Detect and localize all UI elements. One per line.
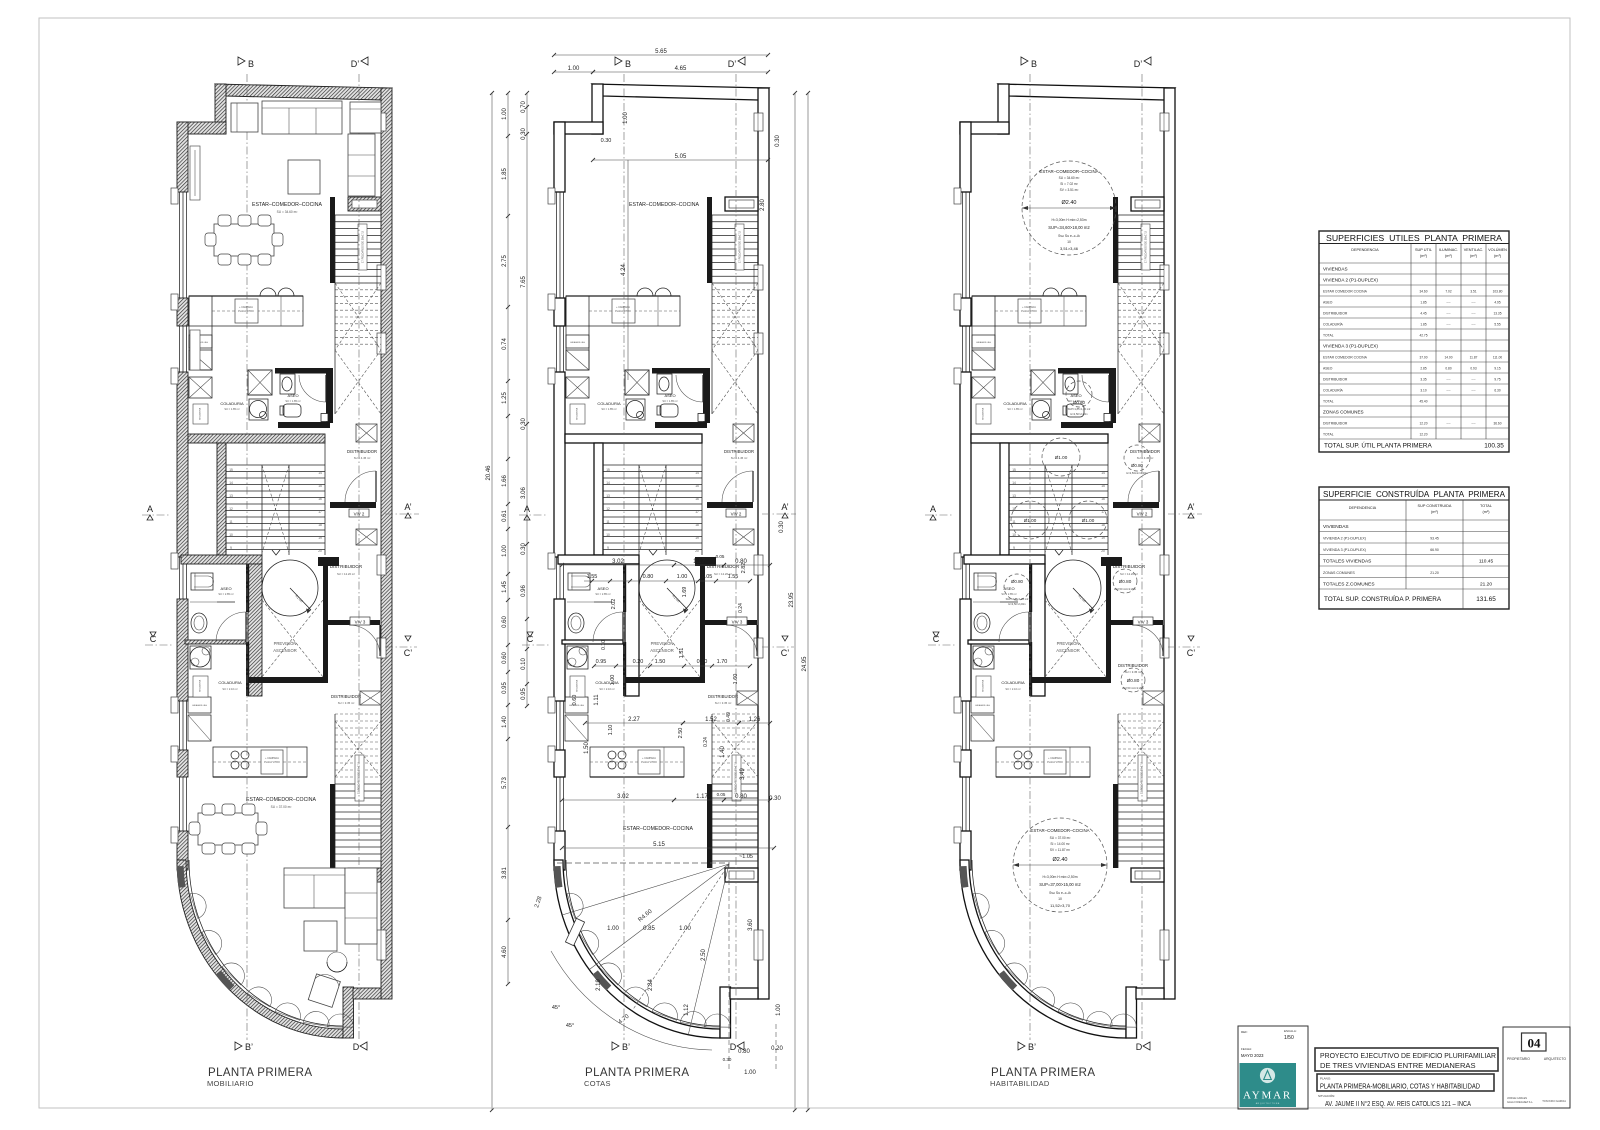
svg-text:1.69: 1.69 xyxy=(682,587,688,598)
svg-text:110.45: 110.45 xyxy=(1479,558,1494,564)
svg-text:14: 14 xyxy=(229,481,233,485)
svg-text:11.87: 11.87 xyxy=(1470,356,1478,360)
svg-text:PROYECTO EJECUTIVO DE EDIFICIO: PROYECTO EJECUTIVO DE EDIFICIO PLURIFAMI… xyxy=(1320,1051,1496,1060)
svg-text:21.20: 21.20 xyxy=(1480,581,1492,587)
svg-text:1.26: 1.26 xyxy=(749,717,761,723)
svg-text:PLANTA PRIMERA-MOBILIARIO, COT: PLANTA PRIMERA-MOBILIARIO, COTAS Y HABIT… xyxy=(1320,1082,1480,1091)
svg-text:ASEO: ASEO xyxy=(664,393,675,398)
svg-text:(m²): (m²) xyxy=(1420,254,1428,258)
svg-text:DE TRES VIVIENDAS ENTRE MEDIAN: DE TRES VIVIENDAS ENTRE MEDIANERAS xyxy=(1320,1061,1476,1070)
svg-text:C: C xyxy=(933,634,940,644)
svg-text:1.55: 1.55 xyxy=(728,574,739,580)
svg-text:LAVAVAJILLAS: LAVAVAJILLAS xyxy=(570,341,585,344)
svg-text:SU = 4.45 m²: SU = 4.45 m² xyxy=(1137,456,1154,460)
svg-text:2.75: 2.75 xyxy=(502,255,508,267)
svg-text:3,51>3,46: 3,51>3,46 xyxy=(1060,246,1079,251)
svg-text:VIVIENDA 2 (P1-DUPLEX): VIVIENDA 2 (P1-DUPLEX) xyxy=(1323,536,1366,540)
svg-text:13.35: 13.35 xyxy=(1494,312,1502,316)
svg-text:7.02: 7.02 xyxy=(1445,290,1451,294)
svg-text:1.60: 1.60 xyxy=(733,674,739,685)
svg-text:H=2,50 min=2,20m: H=2,50 min=2,20m xyxy=(1122,686,1144,690)
svg-text:SUP=34,60>18,00 m2: SUP=34,60>18,00 m2 xyxy=(1048,225,1090,230)
svg-text:VIV 3: VIV 3 xyxy=(1138,620,1149,625)
svg-text:1.51: 1.51 xyxy=(679,648,685,659)
svg-text:D: D xyxy=(353,1042,360,1052)
svg-text:10: 10 xyxy=(229,533,233,537)
svg-text:0.80: 0.80 xyxy=(1445,367,1451,371)
svg-text:Ø2.40: Ø2.40 xyxy=(1062,200,1077,206)
svg-text:DISTRIBUIDOR: DISTRIBUIDOR xyxy=(1323,378,1348,382)
svg-text:SU = 1.85 m²: SU = 1.85 m² xyxy=(285,399,300,403)
svg-text:(m²): (m²) xyxy=(1445,254,1453,258)
svg-text:0.05: 0.05 xyxy=(702,574,713,580)
svg-text:14: 14 xyxy=(318,471,322,475)
svg-text:16: 16 xyxy=(318,497,322,501)
svg-text:LAVAVAJILLAS: LAVAVAJILLAS xyxy=(976,341,991,344)
svg-text:PREVISIÓN: PREVISIÓN xyxy=(274,641,297,646)
svg-text:3.02: 3.02 xyxy=(617,794,629,800)
svg-text:0.30: 0.30 xyxy=(521,128,527,140)
svg-text:SU = 2.10 m²: SU = 2.10 m² xyxy=(222,687,237,691)
svg-text:1.40: 1.40 xyxy=(720,746,726,758)
svg-text:COLADURIA: COLADURIA xyxy=(1001,680,1025,685)
svg-text:1.00: 1.00 xyxy=(623,112,629,124)
svg-text:ZONAS COMUNES: ZONAS COMUNES xyxy=(1323,571,1355,575)
svg-text:14: 14 xyxy=(695,471,699,475)
svg-text:SU = 1.85 m²: SU = 1.85 m² xyxy=(601,407,616,411)
svg-text:----: ---- xyxy=(1471,422,1475,426)
svg-text:Ø2.40: Ø2.40 xyxy=(1053,857,1068,863)
svg-text:TOTAL: TOTAL xyxy=(1480,504,1492,508)
svg-text:19: 19 xyxy=(695,536,699,540)
svg-text:SECADORA: SECADORA xyxy=(576,407,579,420)
svg-text:3.02: 3.02 xyxy=(612,559,624,565)
svg-text:34.60: 34.60 xyxy=(1420,290,1428,294)
svg-text:A R Q U I T E C T U R A: A R Q U I T E C T U R A xyxy=(1256,1102,1280,1105)
svg-text:SU = 2.85 m²: SU = 2.85 m² xyxy=(218,592,233,596)
svg-text:0.60: 0.60 xyxy=(572,695,578,706)
svg-text:B: B xyxy=(1031,59,1037,69)
svg-text:1.00: 1.00 xyxy=(679,926,691,932)
svg-text:SV = 3.51 m²: SV = 3.51 m² xyxy=(1060,188,1079,192)
svg-text:DISTRIBUIDOR: DISTRIBUIDOR xyxy=(1113,564,1146,569)
svg-text:3.35: 3.35 xyxy=(1420,378,1426,382)
svg-text:1.00: 1.00 xyxy=(502,108,508,120)
svg-text:Ø1.00: Ø1.00 xyxy=(1055,455,1068,460)
svg-text:1.85: 1.85 xyxy=(1420,323,1426,327)
svg-text:ESTAR–COMEDOR–COCINA: ESTAR–COMEDOR–COCINA xyxy=(246,797,316,803)
svg-text:15: 15 xyxy=(229,468,233,472)
svg-text:+ CAMPANA: + CAMPANA xyxy=(239,306,253,309)
svg-text:ASEO: ASEO xyxy=(1070,393,1081,398)
svg-text:17: 17 xyxy=(1101,510,1105,514)
svg-text:ASEO: ASEO xyxy=(597,586,608,591)
svg-text:H=2,50>2,20m: H=2,50>2,20m xyxy=(1008,602,1025,606)
svg-text:SITUACIÓN:: SITUACIÓN: xyxy=(1318,1093,1335,1098)
svg-text:COLADURIA: COLADURIA xyxy=(1003,401,1027,406)
svg-text:15: 15 xyxy=(695,484,699,488)
svg-text:ASEO: ASEO xyxy=(1003,586,1014,591)
svg-text:SI = 14.00 m²: SI = 14.00 m² xyxy=(1050,842,1069,846)
svg-text:24.95: 24.95 xyxy=(802,656,808,672)
svg-text:----: ---- xyxy=(1446,422,1450,426)
svg-text:TOTAL SUP. ÚTIL PLANTA PRI: TOTAL SUP. ÚTIL PLANTA PRIMERA xyxy=(1324,441,1432,450)
svg-text:10: 10 xyxy=(1058,897,1062,901)
svg-text:B’: B’ xyxy=(245,1042,253,1052)
svg-text:36.60: 36.60 xyxy=(1494,422,1502,426)
svg-text:5.73: 5.73 xyxy=(502,777,508,789)
svg-text:A’: A’ xyxy=(404,502,411,512)
svg-text:1.12: 1.12 xyxy=(684,1004,690,1016)
svg-text:15: 15 xyxy=(1012,468,1016,472)
svg-text:----: ---- xyxy=(1446,389,1450,393)
svg-text:100.35: 100.35 xyxy=(1484,443,1504,450)
svg-text:0.60: 0.60 xyxy=(502,652,508,664)
svg-text:B’: B’ xyxy=(1028,1042,1036,1052)
svg-text:1.45: 1.45 xyxy=(502,581,508,593)
svg-text:1.00: 1.00 xyxy=(610,675,616,686)
svg-text:Ø0.80: Ø0.80 xyxy=(1011,579,1024,584)
svg-text:SU = 1.85 m²: SU = 1.85 m² xyxy=(1007,407,1022,411)
svg-text:5.15: 5.15 xyxy=(653,842,665,848)
svg-text:VIVIENDA 3 (P1-DUPLEX): VIVIENDA 3 (P1-DUPLEX) xyxy=(1323,548,1366,552)
svg-text:14: 14 xyxy=(1101,471,1105,475)
svg-text:9: 9 xyxy=(1013,546,1015,550)
svg-text:DISTRIBUIDOR: DISTRIBUIDOR xyxy=(1130,449,1160,454)
svg-text:0.20: 0.20 xyxy=(633,659,644,665)
svg-text:B’: B’ xyxy=(622,1042,630,1052)
svg-text:Ø0.80: Ø0.80 xyxy=(1127,678,1140,683)
svg-text:VIV 3: VIV 3 xyxy=(732,620,743,625)
svg-text:SU = 1.85 m²: SU = 1.85 m² xyxy=(224,407,239,411)
svg-text:LAVAVAJILLAS: LAVAVAJILLAS xyxy=(975,704,990,707)
svg-text:9.75: 9.75 xyxy=(1494,378,1500,382)
svg-text:ASCENSOR: ASCENSOR xyxy=(273,648,297,653)
svg-text:----: ---- xyxy=(1446,301,1450,305)
svg-text:SECADORA: SECADORA xyxy=(199,679,202,692)
svg-text:PLACA VITRO: PLACA VITRO xyxy=(238,310,254,313)
svg-text:1.50: 1.50 xyxy=(655,659,666,665)
svg-text:D’: D’ xyxy=(351,59,360,69)
svg-text:2.27: 2.27 xyxy=(628,717,640,723)
svg-text:18: 18 xyxy=(318,523,322,527)
svg-text:4.60: 4.60 xyxy=(502,946,508,958)
svg-text:SUP=2,85>1,20 m2: SUP=2,85>1,20 m2 xyxy=(1006,597,1029,601)
svg-text:SECADORA: SECADORA xyxy=(199,407,202,420)
svg-text:4.65: 4.65 xyxy=(675,66,687,72)
svg-text:11: 11 xyxy=(229,520,233,524)
svg-text:----: ---- xyxy=(1471,389,1475,393)
svg-text:PLANTA PRIMERA: PLANTA PRIMERA xyxy=(585,1067,689,1079)
svg-text:SUP=37,00>15,00 m2: SUP=37,00>15,00 m2 xyxy=(1039,882,1081,887)
svg-text:17: 17 xyxy=(318,510,322,514)
svg-text:14.00: 14.00 xyxy=(1445,356,1453,360)
svg-text:DISTRIBUIDOR: DISTRIBUIDOR xyxy=(331,694,361,699)
svg-text:SU = 2.85 m²: SU = 2.85 m² xyxy=(595,592,610,596)
svg-text:ASCENSOR: ASCENSOR xyxy=(1056,648,1080,653)
svg-text:93.45: 93.45 xyxy=(1430,536,1439,540)
svg-text:ESTAR–COMEDOR–COCINA: ESTAR–COMEDOR–COCINA xyxy=(1039,169,1098,174)
svg-text:AYMAR: AYMAR xyxy=(1243,1090,1292,1102)
svg-text:0.30: 0.30 xyxy=(775,135,781,147)
svg-text:H=2,50 min=2,20m: H=2,50 min=2,20m xyxy=(1114,587,1136,591)
svg-text:45.40: 45.40 xyxy=(1420,400,1428,404)
svg-text:DISTRIBUIDOR: DISTRIBUIDOR xyxy=(347,449,377,454)
svg-text:11,52>3,70: 11,52>3,70 xyxy=(1050,903,1071,908)
svg-text:Sv≥ Su e–c–ik: Sv≥ Su e–c–ik xyxy=(1058,234,1080,238)
svg-text:H=3,00m H min=2,53m: H=3,00m H min=2,53m xyxy=(1051,218,1086,222)
svg-text:3.06: 3.06 xyxy=(521,487,527,499)
svg-text:A’: A’ xyxy=(1187,502,1194,512)
svg-text:18: 18 xyxy=(695,523,699,527)
svg-text:SU = 12.20 m²: SU = 12.20 m² xyxy=(337,572,355,576)
svg-text:16: 16 xyxy=(695,497,699,501)
svg-text:Ø1.00: Ø1.00 xyxy=(1024,518,1037,523)
svg-text:0.95: 0.95 xyxy=(502,682,508,694)
svg-text:0.80: 0.80 xyxy=(738,1049,750,1055)
svg-text:Ø0.80: Ø0.80 xyxy=(1073,400,1086,405)
svg-text:4.95: 4.95 xyxy=(1494,301,1500,305)
svg-text:+ CAMPANA: + CAMPANA xyxy=(1048,757,1062,760)
svg-text:C’: C’ xyxy=(404,648,413,658)
svg-text:21.20: 21.20 xyxy=(1430,571,1439,575)
svg-text:----: ---- xyxy=(1471,312,1475,316)
svg-text:ESTAR–COMEDOR–COCINA: ESTAR–COMEDOR–COCINA xyxy=(1030,828,1089,833)
svg-text:VOLÚMEN: VOLÚMEN xyxy=(1488,247,1507,252)
svg-text:4.45: 4.45 xyxy=(1420,312,1426,316)
svg-text:DISTRIBUIDOR: DISTRIBUIDOR xyxy=(708,694,738,699)
svg-text:ESTAR–COMEDOR–COCINA: ESTAR–COMEDOR–COCINA xyxy=(629,202,699,208)
svg-text:DEPENDENCIA: DEPENDENCIA xyxy=(1351,248,1379,252)
svg-text:7.65: 7.65 xyxy=(521,276,527,288)
svg-text:1.17: 1.17 xyxy=(696,794,708,800)
svg-text:1.00: 1.00 xyxy=(677,574,688,580)
svg-text:DISTRIBUIDOR: DISTRIBUIDOR xyxy=(1323,422,1348,426)
svg-text:1.00: 1.00 xyxy=(502,545,508,557)
svg-text:DEPENDENCIA: DEPENDENCIA xyxy=(1349,506,1377,510)
svg-text:----: ---- xyxy=(1446,378,1450,382)
svg-text:1.70: 1.70 xyxy=(717,659,728,665)
svg-text:0.30: 0.30 xyxy=(779,521,785,533)
svg-text:----: ---- xyxy=(1471,323,1475,327)
svg-text:VIVIENDAS: VIVIENDAS xyxy=(1323,524,1349,530)
svg-text:2.50: 2.50 xyxy=(678,728,684,739)
svg-text:103.80: 103.80 xyxy=(1493,290,1503,294)
svg-text:15: 15 xyxy=(606,468,610,472)
svg-text:PLACA VITRO: PLACA VITRO xyxy=(264,761,280,764)
svg-text:~1.05: ~1.05 xyxy=(739,854,753,860)
svg-text:6.30: 6.30 xyxy=(1494,389,1500,393)
svg-text:SU = 2.10 m²: SU = 2.10 m² xyxy=(599,687,614,691)
svg-text:18: 18 xyxy=(1101,523,1105,527)
svg-text:PROPIETARIO: PROPIETARIO xyxy=(1507,1057,1530,1061)
svg-text:3.81: 3.81 xyxy=(502,867,508,879)
svg-text:(m³): (m³) xyxy=(1494,254,1502,258)
svg-text:SU = 37.00 m²: SU = 37.00 m² xyxy=(1050,836,1071,840)
svg-text:+ CAMPANA: + CAMPANA xyxy=(1022,306,1036,309)
svg-text:3.10: 3.10 xyxy=(1420,389,1426,393)
svg-text:JORGE CARLES: JORGE CARLES xyxy=(1507,1096,1527,1100)
svg-text:10: 10 xyxy=(606,533,610,537)
svg-text:HABITABILIDAD: HABITABILIDAD xyxy=(990,1079,1050,1088)
svg-text:SUP=1,85>1,20 m2: SUP=1,85>1,20 m2 xyxy=(1068,407,1091,411)
svg-text:11: 11 xyxy=(1012,520,1016,524)
svg-text:0.49: 0.49 xyxy=(726,712,732,722)
svg-text:Sv≥ Su e–c–ik: Sv≥ Su e–c–ik xyxy=(1049,891,1071,895)
svg-text:37.00: 37.00 xyxy=(1420,356,1428,360)
svg-text:5.65: 5.65 xyxy=(655,49,667,55)
svg-text:1.25: 1.25 xyxy=(502,392,508,404)
svg-text:45°: 45° xyxy=(552,1005,560,1011)
svg-text:VENTILAC.: VENTILAC. xyxy=(1464,248,1484,252)
svg-text:SU = 4.45 m²: SU = 4.45 m² xyxy=(354,456,371,460)
svg-text:MOBILIARIO: MOBILIARIO xyxy=(207,1079,254,1088)
svg-text:SU = 4.45 m²: SU = 4.45 m² xyxy=(731,456,748,460)
svg-text:SECADORA: SECADORA xyxy=(576,679,579,692)
svg-text:0.20: 0.20 xyxy=(697,659,708,665)
svg-text:131.65: 131.65 xyxy=(1476,596,1496,603)
svg-text:11: 11 xyxy=(606,520,610,524)
svg-text:SU = 34.60 m²: SU = 34.60 m² xyxy=(277,210,298,214)
svg-text:0.80: 0.80 xyxy=(735,794,747,800)
svg-text:0.24: 0.24 xyxy=(738,603,744,613)
svg-text:1.85: 1.85 xyxy=(502,168,508,180)
svg-text:SECADORA: SECADORA xyxy=(982,407,985,420)
svg-text:04: 04 xyxy=(1528,1036,1542,1051)
svg-text:GALLO DIEGUEZ S.L.: GALLO DIEGUEZ S.L. xyxy=(1507,1100,1534,1104)
svg-text:PREVISIÓN: PREVISIÓN xyxy=(651,641,674,646)
svg-text:0.61: 0.61 xyxy=(502,510,508,522)
svg-text:Ø0.80: Ø0.80 xyxy=(1119,579,1132,584)
svg-text:12: 12 xyxy=(606,507,610,511)
svg-text:1.17: 1.17 xyxy=(693,559,705,565)
svg-text:0.20: 0.20 xyxy=(771,1046,783,1052)
svg-text:Ø0.80: Ø0.80 xyxy=(1131,463,1144,468)
svg-text:D: D xyxy=(730,1042,737,1052)
svg-text:0.93: 0.93 xyxy=(1470,367,1476,371)
svg-text:42.75: 42.75 xyxy=(1420,334,1428,338)
svg-text:(m²): (m²) xyxy=(1431,510,1439,514)
svg-text:PLACA VITRO: PLACA VITRO xyxy=(1047,761,1063,764)
svg-text:----: ---- xyxy=(1446,312,1450,316)
svg-text:SU = 2.85 m²: SU = 2.85 m² xyxy=(1001,592,1016,596)
svg-text:SU = 3.35 m²: SU = 3.35 m² xyxy=(715,701,732,705)
svg-text:4.24: 4.24 xyxy=(621,264,627,276)
svg-text:1.00: 1.00 xyxy=(776,1004,782,1016)
svg-text:----: ---- xyxy=(1471,301,1475,305)
svg-text:ASEO: ASEO xyxy=(220,586,231,591)
svg-text:0.95: 0.95 xyxy=(521,688,527,700)
svg-text:1.10: 1.10 xyxy=(608,725,614,736)
svg-text:2.82: 2.82 xyxy=(741,563,747,574)
svg-text:ZONAS COMUNES: ZONAS COMUNES xyxy=(1323,410,1364,415)
svg-text:0.85: 0.85 xyxy=(643,926,655,932)
svg-text:0.60: 0.60 xyxy=(502,616,508,628)
svg-text:10: 10 xyxy=(1067,240,1071,244)
svg-text:A’: A’ xyxy=(781,502,788,512)
svg-text:0.10: 0.10 xyxy=(601,640,607,650)
svg-text:ASEO: ASEO xyxy=(287,393,298,398)
svg-text:SUP CONSTRUIDA: SUP CONSTRUIDA xyxy=(1418,504,1452,508)
svg-text:1.85: 1.85 xyxy=(1420,301,1426,305)
svg-text:COTAS: COTAS xyxy=(584,1079,611,1088)
svg-text:1.00: 1.00 xyxy=(568,66,580,72)
svg-text:3.51: 3.51 xyxy=(1470,290,1476,294)
svg-text:PLANO:: PLANO: xyxy=(1320,1077,1331,1081)
svg-text:2.50: 2.50 xyxy=(701,949,707,961)
svg-text:SV = 11.87 m²: SV = 11.87 m² xyxy=(1050,848,1070,852)
svg-text:0.96: 0.96 xyxy=(521,585,527,597)
svg-text:ESTAR COMEDOR COCINA: ESTAR COMEDOR COCINA xyxy=(1323,356,1368,360)
svg-text:H=2,50min=2,20m: H=2,50min=2,20m xyxy=(1126,471,1147,475)
svg-text:ASEO: ASEO xyxy=(1323,301,1333,305)
svg-text:AV. JAUME II N°2 ESQ. AV. REIS: AV. JAUME II N°2 ESQ. AV. REIS CATOLICS … xyxy=(1325,1100,1471,1108)
svg-text:B: B xyxy=(248,59,254,69)
svg-text:B: B xyxy=(625,59,631,69)
svg-text:20: 20 xyxy=(1101,549,1105,553)
svg-text:ESTAR–COMEDOR–COCINA: ESTAR–COMEDOR–COCINA xyxy=(623,826,693,832)
svg-text:C’: C’ xyxy=(1187,648,1196,658)
svg-text:SECADORA: SECADORA xyxy=(982,679,985,692)
svg-text:0.30: 0.30 xyxy=(723,1057,732,1062)
svg-text:C’: C’ xyxy=(781,648,790,658)
svg-text:0.30: 0.30 xyxy=(769,796,781,802)
svg-text:SU = 2.10 m²: SU = 2.10 m² xyxy=(1005,687,1020,691)
svg-text:0.10: 0.10 xyxy=(521,658,527,670)
svg-text:0.05: 0.05 xyxy=(716,554,725,559)
svg-text:2.85: 2.85 xyxy=(1420,367,1426,371)
svg-text:5.05: 5.05 xyxy=(675,154,687,160)
svg-text:1.55: 1.55 xyxy=(587,574,598,580)
svg-text:15: 15 xyxy=(1101,484,1105,488)
svg-text:Ø1.00: Ø1.00 xyxy=(1082,518,1095,523)
svg-text:H=2,50>2,20m: H=2,50>2,20m xyxy=(1070,412,1087,416)
svg-text:----: ---- xyxy=(1471,378,1475,382)
svg-text:20: 20 xyxy=(318,549,322,553)
svg-text:1/50: 1/50 xyxy=(1284,1035,1294,1041)
svg-text:ASEO: ASEO xyxy=(1323,367,1333,371)
svg-text:D: D xyxy=(1136,1042,1143,1052)
svg-text:PLACA VITRO: PLACA VITRO xyxy=(615,310,631,313)
svg-text:SU = 3.35 m²: SU = 3.35 m² xyxy=(338,701,355,705)
svg-text:REF:: REF: xyxy=(1241,1030,1248,1034)
svg-text:SUPERFICIE CONSTRUÍDA PLANTA: SUPERFICIE CONSTRUÍDA PLANTA PRIMERA xyxy=(1323,489,1505,499)
svg-text:1.11: 1.11 xyxy=(594,694,600,706)
svg-text:SU = 34.60 m²: SU = 34.60 m² xyxy=(1059,176,1080,180)
svg-text:D’: D’ xyxy=(1134,59,1143,69)
svg-text:ASCENSOR: ASCENSOR xyxy=(650,648,674,653)
svg-text:TOTAL: TOTAL xyxy=(1323,334,1334,338)
svg-text:SU = 1.85 m²: SU = 1.85 m² xyxy=(662,399,677,403)
svg-text:ILUMINAC.: ILUMINAC. xyxy=(1439,248,1458,252)
svg-text:COLADURIA: COLADURIA xyxy=(220,401,244,406)
svg-text:12.20: 12.20 xyxy=(1420,433,1428,437)
svg-text:15: 15 xyxy=(318,484,322,488)
svg-text:VIVIENDAS: VIVIENDAS xyxy=(1323,267,1348,272)
svg-text:0.05: 0.05 xyxy=(717,792,726,797)
svg-text:9: 9 xyxy=(230,546,232,550)
svg-text:C: C xyxy=(527,634,534,644)
svg-text:20.46: 20.46 xyxy=(486,465,492,481)
svg-text:14: 14 xyxy=(1012,481,1016,485)
svg-text:VIV 3: VIV 3 xyxy=(355,620,366,625)
svg-text:COLADURIA: COLADURIA xyxy=(218,680,242,685)
svg-text:0.24: 0.24 xyxy=(703,737,709,747)
svg-text:+ CAMPANA: + CAMPANA xyxy=(265,757,279,760)
svg-text:A: A xyxy=(930,504,936,514)
svg-text:SUP UTIL: SUP UTIL xyxy=(1415,248,1432,252)
svg-text:2.02: 2.02 xyxy=(611,599,617,610)
